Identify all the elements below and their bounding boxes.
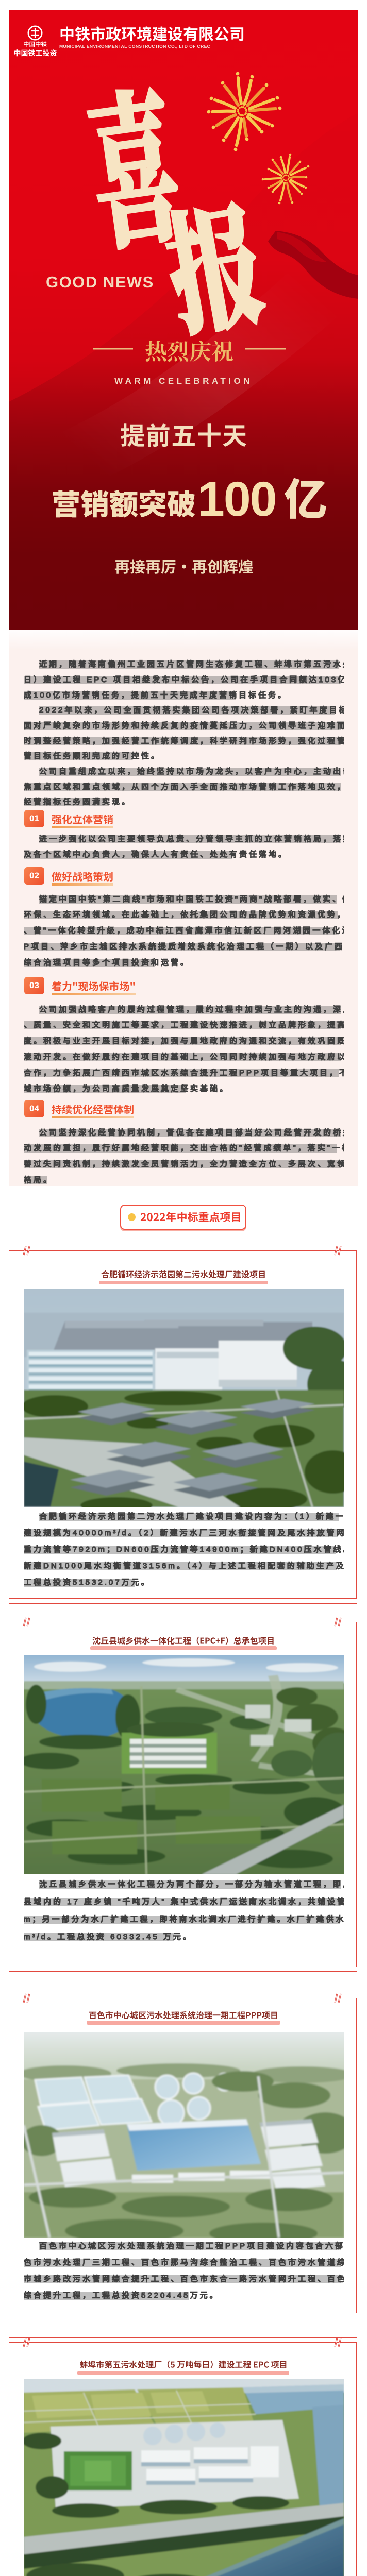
svg-text:WARM CELEBRATION: WARM CELEBRATION — [114, 376, 253, 386]
svg-text:MUNICIPAL ENVIRONMENTAL CONSTR: MUNICIPAL ENVIRONMENTAL CONSTRUCTION CO.… — [59, 44, 210, 49]
svg-text:GOOD NEWS: GOOD NEWS — [46, 273, 154, 291]
svg-text:100: 100 — [197, 472, 276, 527]
